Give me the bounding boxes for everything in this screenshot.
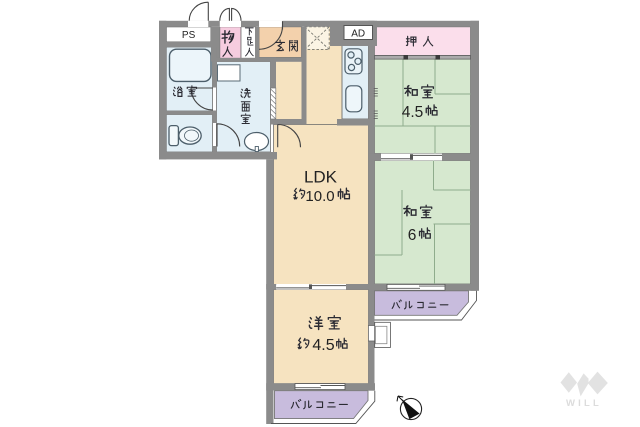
svg-text:PS: PS <box>182 30 196 41</box>
svg-text:4.5: 4.5 <box>402 104 424 121</box>
svg-text:10.0: 10.0 <box>305 188 334 205</box>
svg-text:AD: AD <box>351 29 365 40</box>
svg-text:LDK: LDK <box>304 168 338 187</box>
svg-text:WILL: WILL <box>566 398 602 409</box>
svg-text:6: 6 <box>408 227 417 244</box>
svg-text:4.5: 4.5 <box>312 337 334 354</box>
